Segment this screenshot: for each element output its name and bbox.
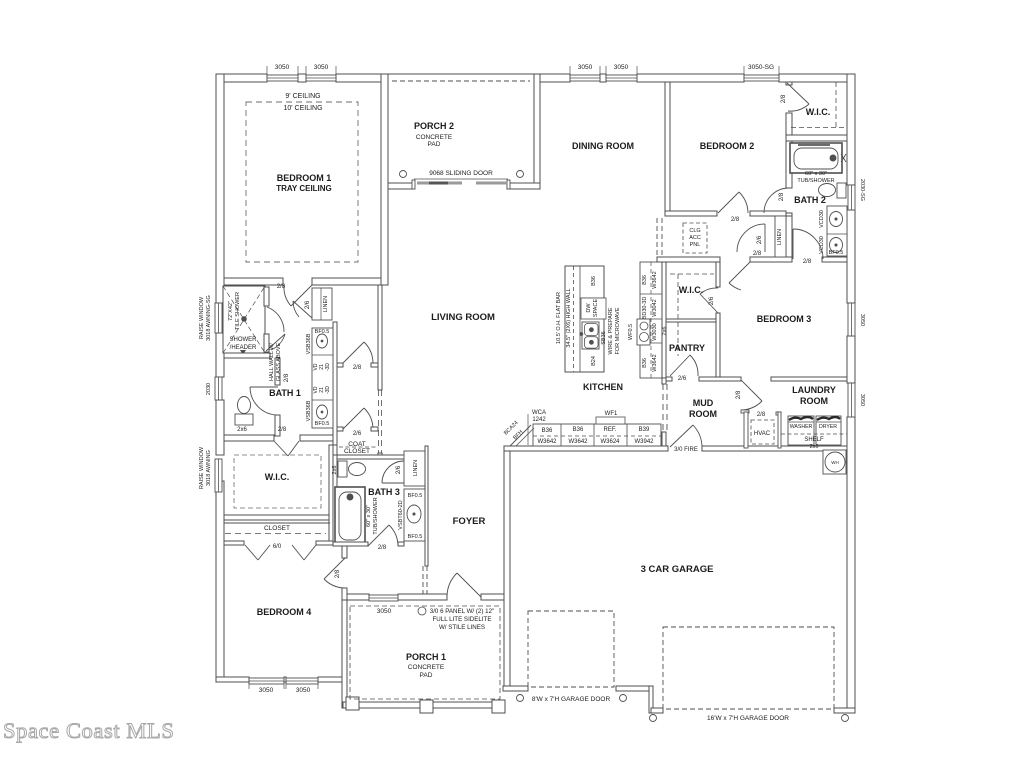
- svg-text:BF0.5: BF0.5: [315, 329, 330, 335]
- svg-text:LINEN: LINEN: [413, 460, 419, 476]
- svg-text:60" x 30": 60" x 30": [366, 505, 372, 527]
- svg-text:3050: 3050: [314, 64, 329, 71]
- svg-text:1242: 1242: [532, 417, 546, 423]
- svg-text:VSB36B: VSB36B: [306, 400, 312, 421]
- svg-text:CLOSET: CLOSET: [264, 525, 290, 532]
- svg-text:W3642: W3642: [652, 271, 658, 288]
- svg-text:3050: 3050: [259, 687, 274, 694]
- svg-text:DW: DW: [586, 303, 592, 313]
- svg-text:2/6: 2/6: [353, 431, 362, 437]
- svg-text:W/ STILE LINES: W/ STILE LINES: [439, 624, 485, 631]
- svg-text:CLG: CLG: [689, 228, 700, 234]
- svg-text:B39: B39: [639, 427, 650, 433]
- svg-text:2/8: 2/8: [278, 427, 287, 433]
- svg-text:WF1: WF1: [605, 411, 618, 417]
- svg-text:BEDROOM 3: BEDROOM 3: [757, 314, 812, 324]
- svg-text:3018 AWNING: 3018 AWNING: [206, 450, 212, 486]
- svg-text:-3D: -3D: [325, 363, 331, 371]
- svg-text:VCD30: VCD30: [819, 210, 825, 228]
- svg-text:DINING ROOM: DINING ROOM: [572, 141, 634, 151]
- svg-text:72"X42": 72"X42": [228, 301, 234, 321]
- svg-text:VSBT60-2D: VSBT60-2D: [398, 500, 404, 529]
- svg-text:3 CAR GARAGE: 3 CAR GARAGE: [641, 564, 714, 575]
- svg-text:2/8: 2/8: [284, 373, 290, 382]
- svg-text:BATH 1: BATH 1: [269, 388, 301, 398]
- svg-text:3050: 3050: [578, 64, 593, 71]
- svg-text:2/6: 2/6: [396, 465, 402, 474]
- svg-text:WASHER: WASHER: [790, 424, 813, 430]
- svg-text:CONCRETE: CONCRETE: [408, 664, 445, 671]
- svg-text:W.I.C.: W.I.C.: [806, 107, 831, 117]
- svg-text:2/6: 2/6: [305, 300, 311, 309]
- svg-text:-3D: -3D: [325, 386, 331, 394]
- svg-text:2030-SG: 2030-SG: [859, 179, 865, 201]
- svg-text:LAUNDRY: LAUNDRY: [792, 385, 836, 395]
- svg-text:3/0 6 PANEL W/ (2) 12": 3/0 6 PANEL W/ (2) 12": [430, 608, 494, 615]
- svg-text:3050: 3050: [859, 394, 865, 406]
- svg-text:KITCHEN: KITCHEN: [583, 382, 623, 392]
- svg-text:2/8: 2/8: [335, 569, 341, 578]
- svg-text:LINEN: LINEN: [777, 229, 783, 245]
- svg-text:2/8: 2/8: [353, 365, 362, 371]
- svg-text:DRYER: DRYER: [819, 424, 837, 430]
- svg-text:B36: B36: [642, 275, 648, 285]
- svg-text:HVAC: HVAC: [754, 431, 771, 437]
- svg-text:FOR MICROWAVE: FOR MICROWAVE: [615, 307, 621, 354]
- svg-text:B36: B36: [573, 427, 584, 433]
- svg-text:3050: 3050: [614, 64, 629, 71]
- svg-text:2/6: 2/6: [757, 235, 763, 244]
- svg-text:2/8: 2/8: [277, 284, 286, 290]
- svg-text:ACC: ACC: [689, 235, 701, 241]
- svg-text:60" x 30": 60" x 30": [805, 171, 827, 177]
- svg-text:PAD: PAD: [420, 672, 433, 679]
- svg-text:B36: B36: [542, 428, 553, 434]
- svg-text:2/8: 2/8: [736, 390, 742, 399]
- svg-text:HALL WALL W/: HALL WALL W/: [269, 343, 275, 381]
- svg-text:2/8: 2/8: [779, 192, 785, 201]
- svg-text:WIRE & PREPARE: WIRE & PREPARE: [608, 307, 614, 354]
- svg-text:VSB36B: VSB36B: [306, 333, 312, 354]
- svg-text:COAT: COAT: [348, 441, 366, 448]
- svg-text:BATH 2: BATH 2: [794, 195, 826, 205]
- svg-text:PNL: PNL: [690, 242, 701, 248]
- svg-text:16'W x 7'H GARAGE DOOR: 16'W x 7'H GARAGE DOOR: [707, 715, 789, 722]
- svg-text:RAISE WINDOW: RAISE WINDOW: [199, 446, 205, 489]
- svg-text:3050: 3050: [377, 608, 392, 615]
- svg-text:SPACE: SPACE: [593, 299, 599, 318]
- svg-text:WCA: WCA: [532, 410, 546, 416]
- svg-text:2x6: 2x6: [332, 466, 338, 475]
- svg-text:PORCH 1: PORCH 1: [406, 652, 446, 662]
- svg-text:ROOM: ROOM: [689, 409, 717, 419]
- svg-text:2/8: 2/8: [757, 412, 766, 418]
- svg-text:2x6: 2x6: [237, 427, 247, 433]
- svg-text:2/8: 2/8: [753, 251, 762, 257]
- svg-text:2/8: 2/8: [781, 94, 787, 103]
- svg-text:WH: WH: [831, 460, 839, 465]
- svg-text:W3942: W3942: [634, 439, 654, 445]
- svg-text:2x6: 2x6: [662, 327, 668, 336]
- svg-text:2/8: 2/8: [803, 259, 812, 265]
- svg-text:3050: 3050: [275, 64, 290, 71]
- svg-text:W3642: W3642: [537, 439, 557, 445]
- svg-text:B24: B24: [591, 356, 597, 366]
- svg-text:RAISE WINDOW: RAISE WINDOW: [199, 296, 205, 339]
- svg-text:FOYER: FOYER: [453, 516, 486, 527]
- svg-text:3050-SG: 3050-SG: [748, 64, 774, 71]
- svg-text:CLOSET: CLOSET: [344, 448, 370, 455]
- svg-text:10.5' O.H. FLAT BAR: 10.5' O.H. FLAT BAR: [556, 292, 562, 344]
- svg-text:2030: 2030: [206, 383, 212, 395]
- svg-text:WF0.5: WF0.5: [628, 324, 634, 340]
- svg-text:SHELF: SHELF: [804, 437, 824, 443]
- svg-text:ROOM: ROOM: [800, 396, 828, 406]
- svg-text:TUB/SHOWER: TUB/SHOWER: [797, 178, 834, 184]
- svg-text:2/8: 2/8: [731, 217, 740, 223]
- svg-text:BF0.5: BF0.5: [315, 421, 330, 427]
- svg-text:LINEN: LINEN: [323, 296, 329, 312]
- svg-text:W3624: W3624: [600, 439, 620, 445]
- svg-text:2/6: 2/6: [678, 376, 687, 382]
- svg-text:GLASS ABOVE: GLASS ABOVE: [276, 342, 282, 381]
- svg-text:TILE SHOWER: TILE SHOWER: [235, 292, 241, 330]
- svg-text:34.5" (2X6) HIGH WALL: 34.5" (2X6) HIGH WALL: [566, 288, 572, 347]
- svg-text:PAD: PAD: [428, 141, 441, 148]
- svg-text:10' CEILING: 10' CEILING: [283, 105, 322, 112]
- svg-text:W3030: W3030: [652, 323, 658, 340]
- svg-text:PORCH 2: PORCH 2: [414, 121, 454, 131]
- svg-text:REF.: REF.: [603, 427, 616, 433]
- svg-text:CONCRETE: CONCRETE: [416, 134, 453, 141]
- svg-text:LIVING ROOM: LIVING ROOM: [431, 312, 495, 323]
- svg-text:MUD: MUD: [693, 398, 714, 408]
- svg-text:8'W x 7'H GARAGE DOOR: 8'W x 7'H GARAGE DOOR: [532, 696, 611, 703]
- svg-text:BEDROOM 1: BEDROOM 1: [277, 173, 332, 183]
- svg-text:BF0.5: BF0.5: [408, 493, 423, 499]
- svg-text:BF0.5: BF0.5: [829, 250, 844, 256]
- svg-text:Space Coast MLS: Space Coast MLS: [3, 718, 175, 743]
- svg-text:BATH 3: BATH 3: [368, 487, 400, 497]
- svg-text:B36: B36: [591, 276, 597, 286]
- svg-text:3/0 FIRE: 3/0 FIRE: [674, 447, 698, 453]
- svg-text:3050: 3050: [296, 687, 311, 694]
- svg-text:B36: B36: [642, 358, 648, 368]
- svg-text:3018 AWNING-SG: 3018 AWNING-SG: [206, 295, 212, 341]
- svg-text:2/6: 2/6: [709, 296, 715, 305]
- svg-text:W3042: W3042: [652, 299, 658, 316]
- svg-text:2x6: 2x6: [810, 444, 819, 450]
- svg-text:SB36: SB36: [601, 331, 607, 344]
- svg-text:2/8: 2/8: [378, 545, 387, 551]
- svg-text:W3642: W3642: [568, 439, 588, 445]
- svg-text:TUB/SHOWER: TUB/SHOWER: [373, 497, 379, 534]
- svg-text:TRAY CEILING: TRAY CEILING: [276, 184, 332, 193]
- svg-text:BEDROOM 4: BEDROOM 4: [257, 607, 312, 617]
- svg-text:9068 SLIDING DOOR: 9068 SLIDING DOOR: [429, 170, 493, 177]
- svg-text:PANTRY: PANTRY: [669, 343, 705, 353]
- svg-text:BD30-3D: BD30-3D: [642, 297, 648, 320]
- svg-text:BF0.5: BF0.5: [408, 534, 423, 540]
- svg-text:FULL LITE SIDELITE: FULL LITE SIDELITE: [433, 616, 492, 623]
- svg-text:BEDROOM 2: BEDROOM 2: [700, 141, 755, 151]
- svg-text:SHOWER: SHOWER: [230, 337, 258, 343]
- svg-text:W.I.C.: W.I.C.: [679, 285, 704, 295]
- svg-text:6/0: 6/0: [273, 544, 282, 550]
- svg-text:9' CEILING: 9' CEILING: [285, 93, 320, 100]
- svg-text:W.I.C.: W.I.C.: [265, 472, 290, 482]
- svg-text:W3642: W3642: [652, 354, 658, 371]
- svg-text:3050: 3050: [859, 314, 865, 326]
